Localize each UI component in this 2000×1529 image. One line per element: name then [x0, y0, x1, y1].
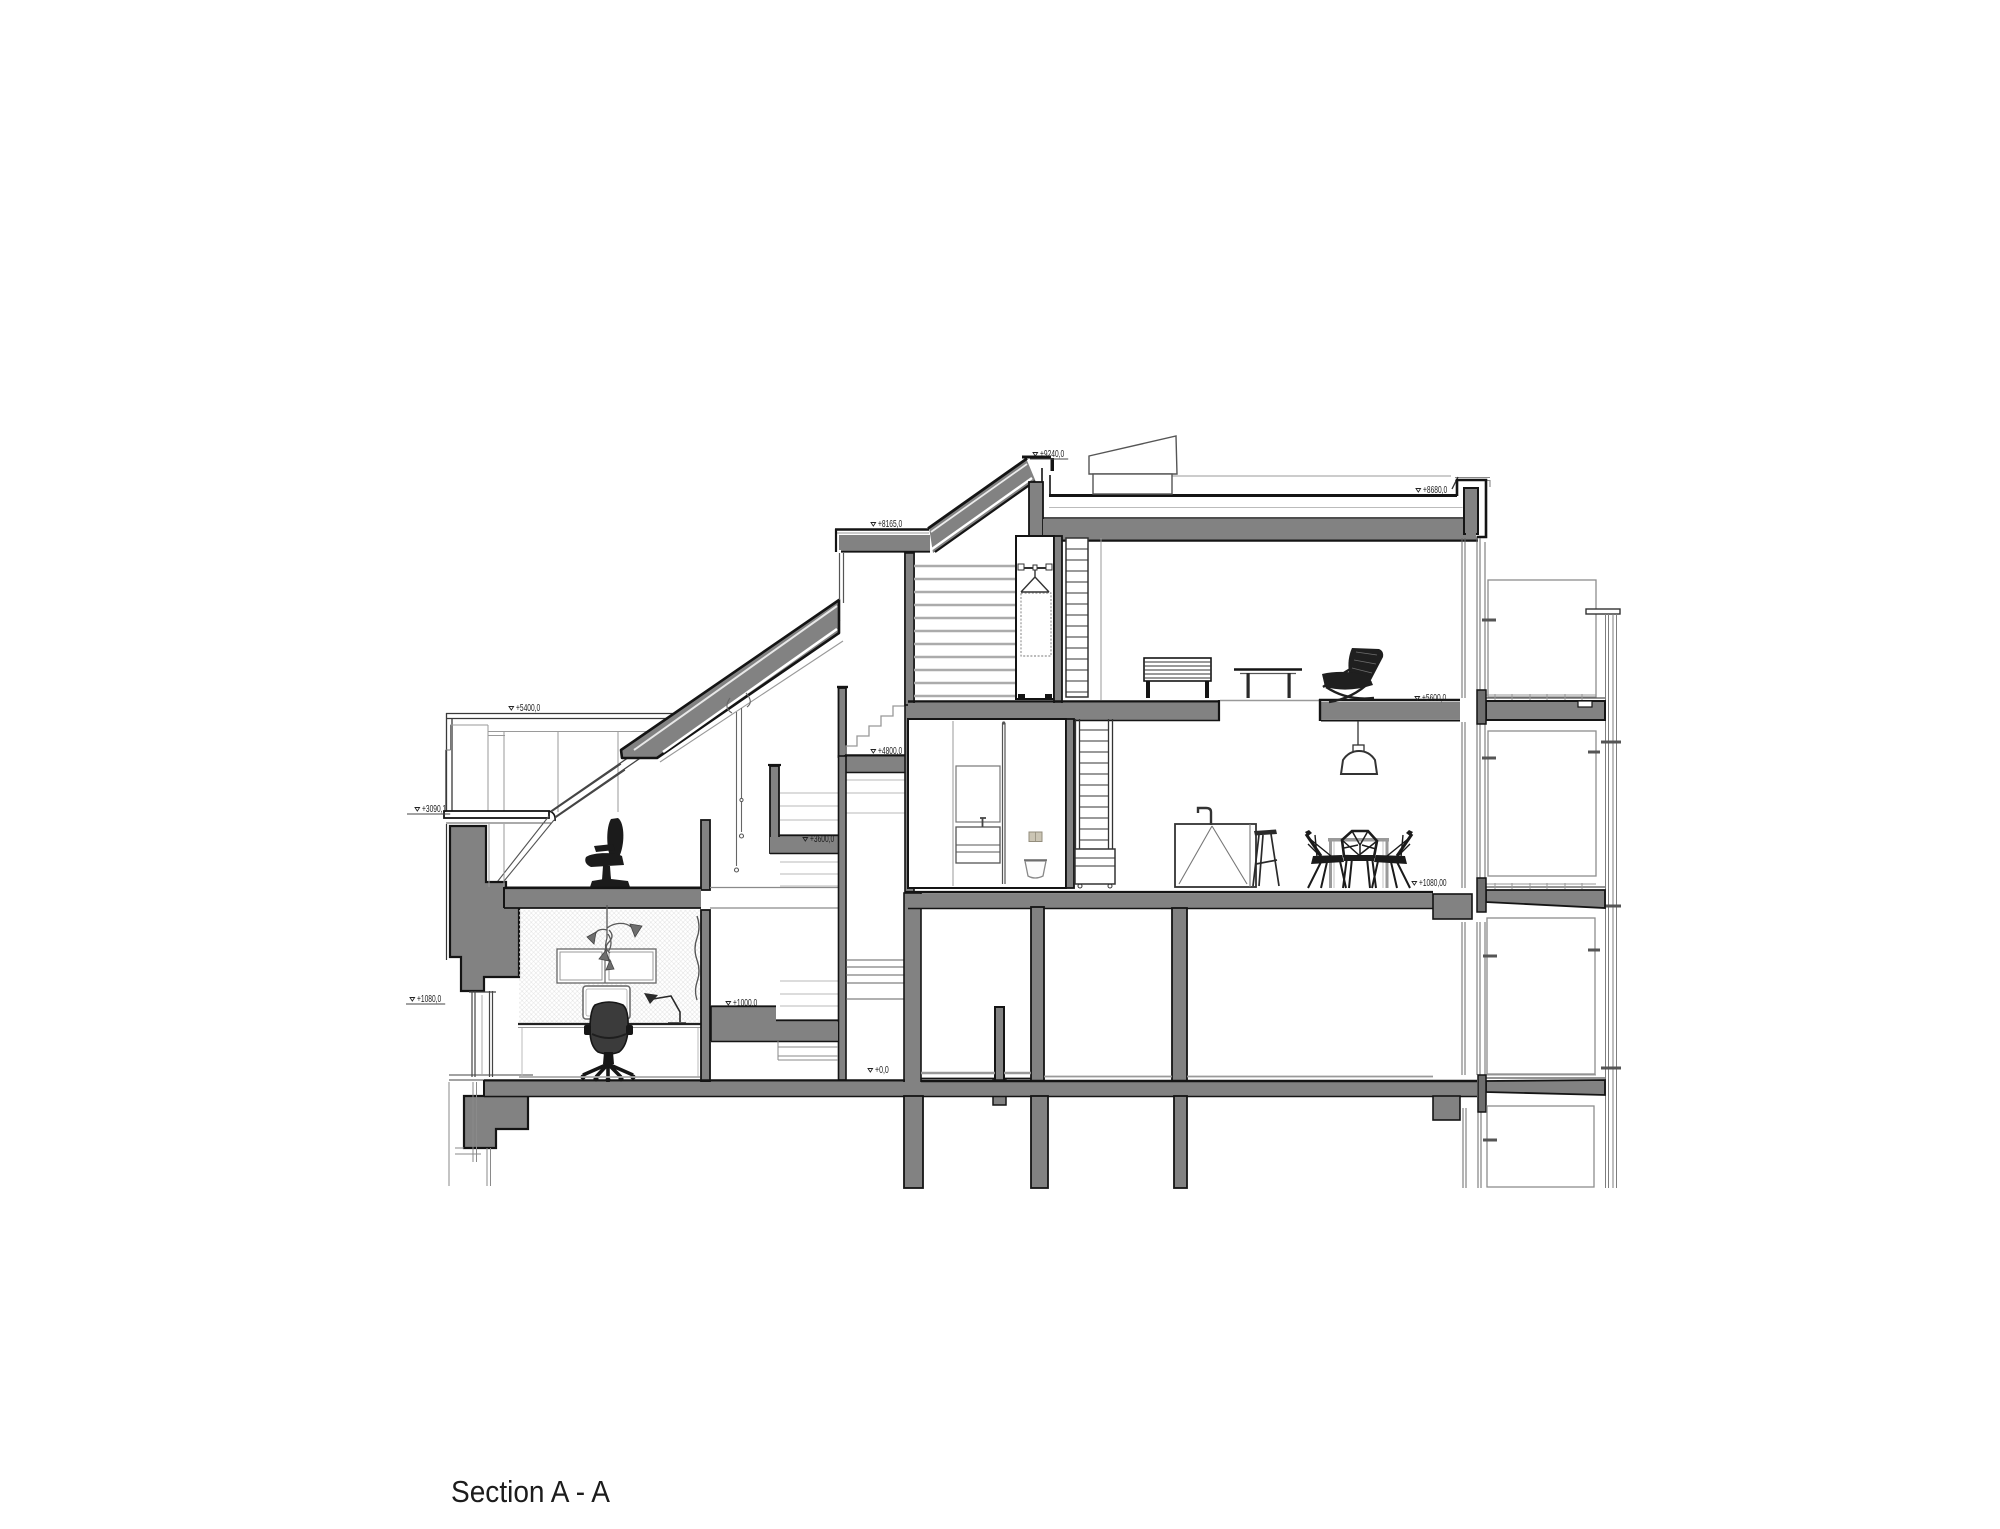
- svg-text:+1080,00: +1080,00: [1419, 878, 1447, 889]
- svg-text:+8680,0: +8680,0: [1423, 485, 1447, 496]
- svg-text:+5600,0: +5600,0: [1422, 693, 1446, 704]
- svg-text:+0,0: +0,0: [875, 1065, 889, 1076]
- svg-text:+8165,0: +8165,0: [878, 519, 902, 530]
- svg-text:+5400,0: +5400,0: [516, 703, 540, 714]
- svg-text:+9240,0: +9240,0: [1040, 449, 1064, 460]
- svg-text:+1000,0: +1000,0: [733, 998, 757, 1009]
- svg-text:+3090,1: +3090,1: [422, 804, 446, 815]
- svg-text:Section A - A: Section A - A: [451, 1474, 610, 1509]
- svg-text:+4800,0: +4800,0: [878, 746, 902, 757]
- svg-text:+1080,0: +1080,0: [417, 994, 441, 1005]
- svg-text:+3600,0: +3600,0: [810, 834, 834, 845]
